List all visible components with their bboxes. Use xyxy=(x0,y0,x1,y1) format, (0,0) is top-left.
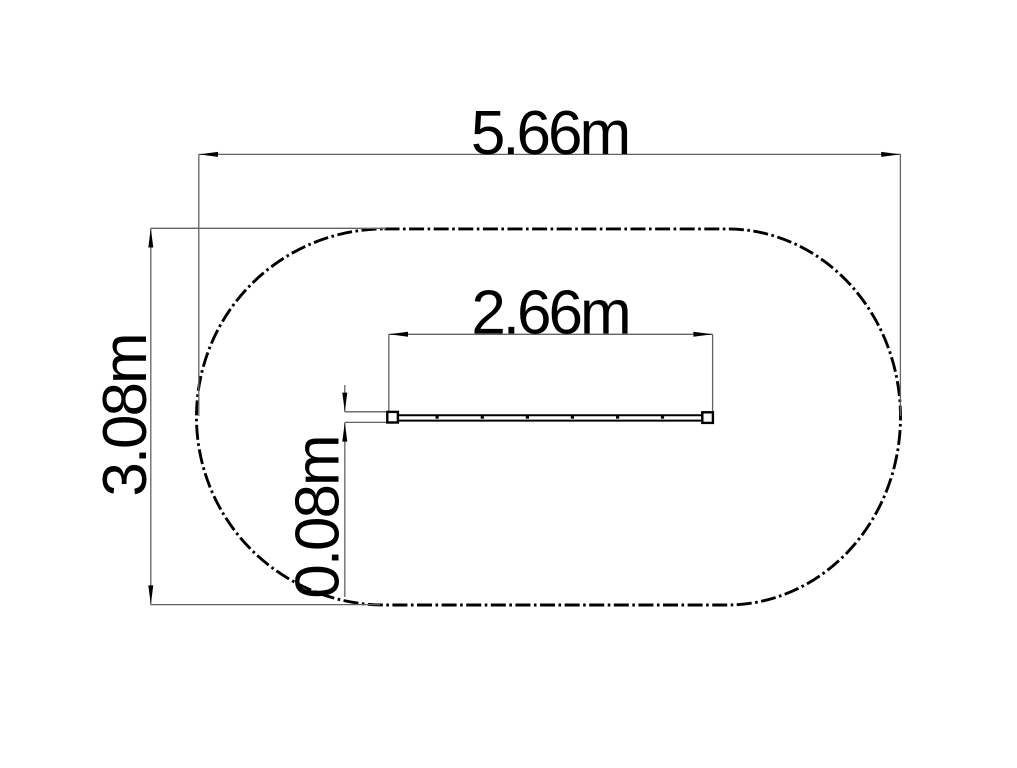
svg-text:0.08m: 0.08m xyxy=(284,436,353,598)
svg-text:5.66m: 5.66m xyxy=(471,99,628,168)
svg-text:3.08m: 3.08m xyxy=(91,334,160,496)
svg-text:2.66m: 2.66m xyxy=(471,279,628,348)
